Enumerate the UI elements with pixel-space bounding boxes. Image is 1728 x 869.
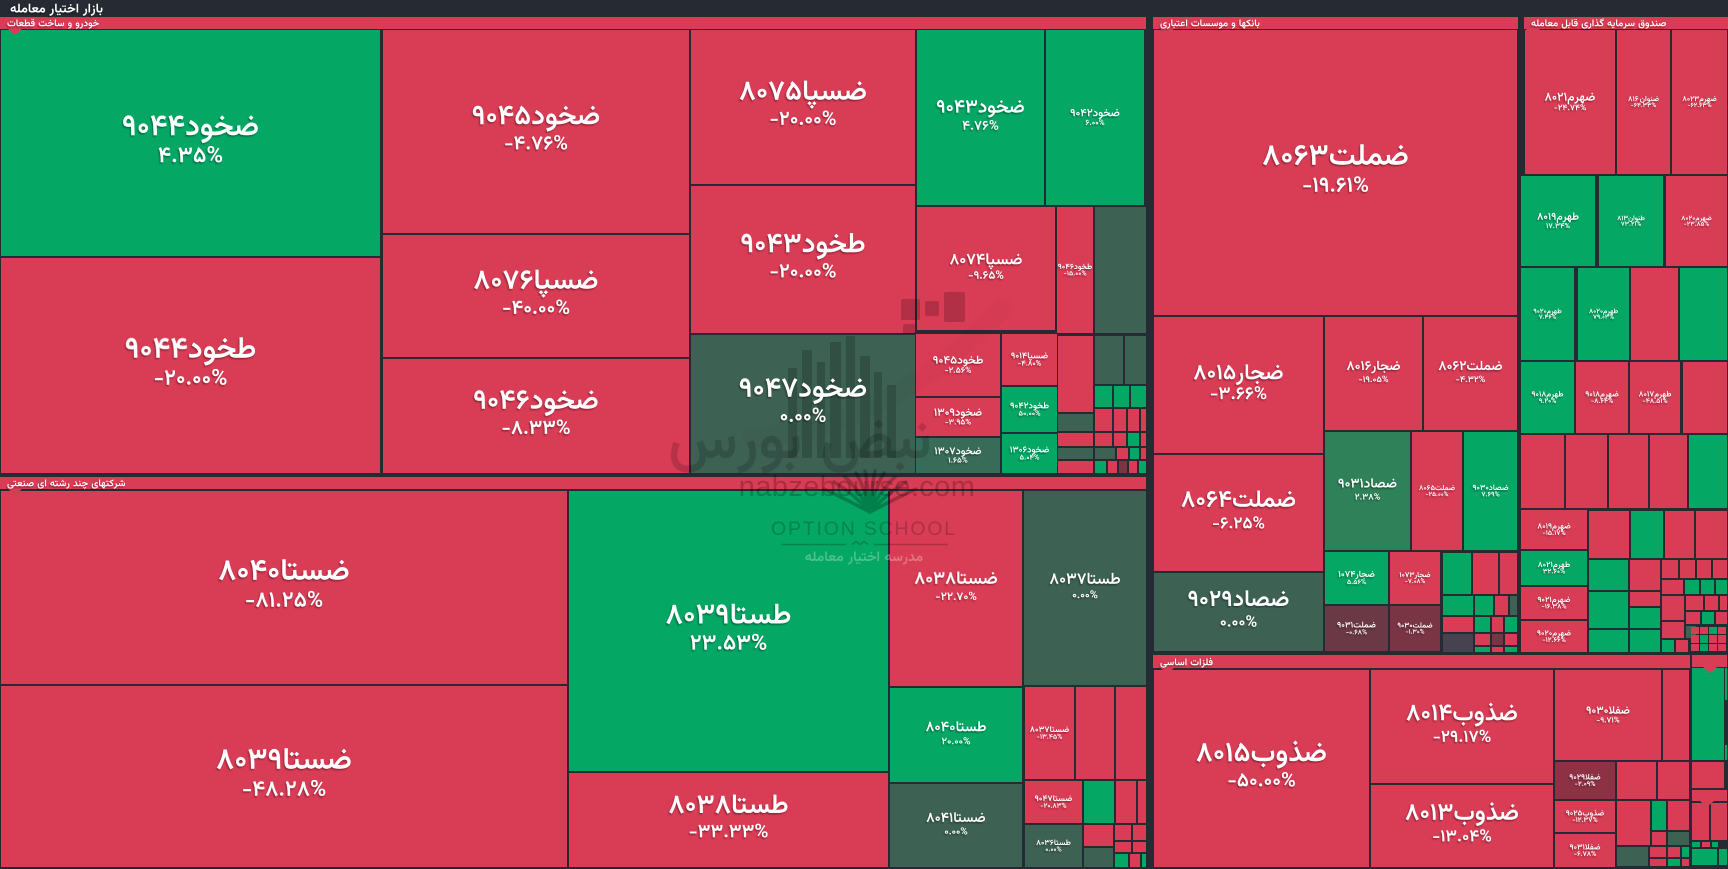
svg-text:nabzebourse.com: nabzebourse.com	[739, 471, 976, 503]
svg-text:OPTION SCHOOL: OPTION SCHOOL	[771, 518, 957, 540]
